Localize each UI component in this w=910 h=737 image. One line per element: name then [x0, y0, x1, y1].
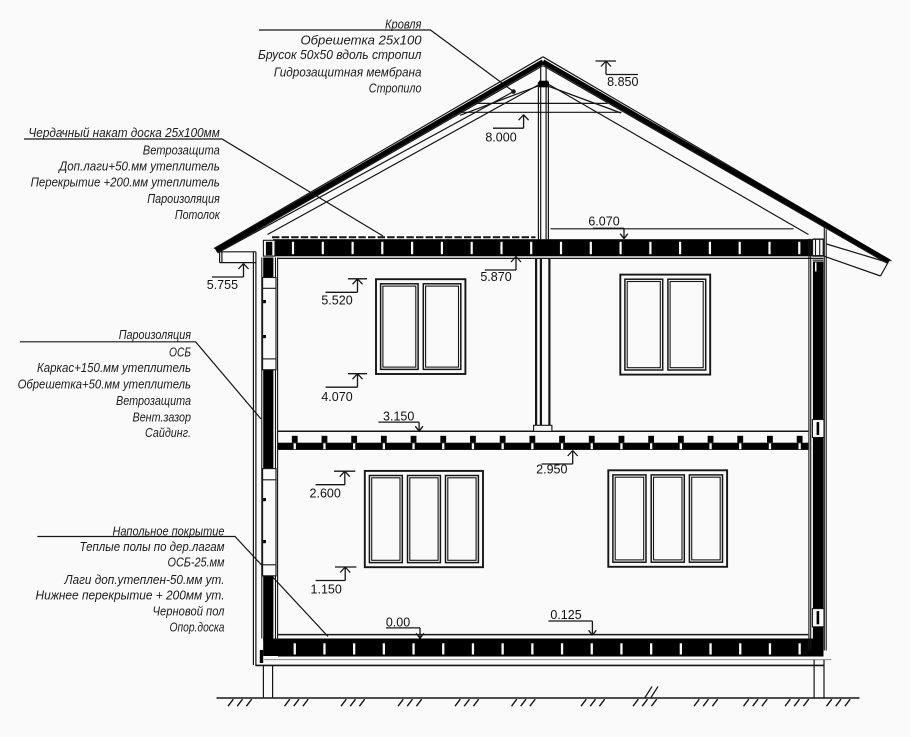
svg-text:Опор.доска: Опор.доска	[170, 620, 225, 635]
svg-text:Перекрытие +200.мм утеплитель: Перекрытие +200.мм утеплитель	[31, 175, 220, 190]
svg-text:5.870: 5.870	[480, 270, 511, 284]
svg-text:Нижнее перекрытие + 200мм ут.: Нижнее перекрытие + 200мм ут.	[36, 588, 225, 603]
svg-text:4.070: 4.070	[321, 390, 352, 404]
svg-text:ОСБ: ОСБ	[169, 345, 191, 360]
svg-text:Гидрозащитная мембрана: Гидрозащитная мембрана	[274, 64, 422, 79]
svg-text:Обрешетка 25х100: Обрешетка 25х100	[301, 32, 423, 47]
svg-text:0.00: 0.00	[386, 616, 410, 630]
svg-text:0.125: 0.125	[550, 608, 581, 622]
svg-text:Ветрозащита: Ветрозащита	[143, 143, 220, 158]
svg-text:Пароизоляция: Пароизоляция	[147, 191, 220, 206]
svg-text:Обрешетка+50.мм утеплитель: Обрешетка+50.мм утеплитель	[18, 377, 192, 392]
svg-text:2.950: 2.950	[536, 462, 567, 476]
svg-text:Каркас+150.мм утеплитель: Каркас+150.мм утеплитель	[37, 360, 191, 375]
svg-text:Вент.зазор: Вент.зазор	[133, 409, 192, 424]
svg-text:5.755: 5.755	[207, 278, 238, 292]
svg-text:6.070: 6.070	[588, 214, 619, 228]
svg-text:Пароизоляция: Пароизоляция	[119, 327, 191, 342]
svg-text:3.150: 3.150	[383, 410, 414, 424]
svg-text:Напольное покрытие: Напольное покрытие	[113, 524, 225, 539]
svg-text:Стропило: Стропило	[369, 80, 422, 95]
svg-text:ОСБ-25.мм: ОСБ-25.мм	[168, 555, 225, 570]
svg-text:Доп.лаги+50.мм утеплитель: Доп.лаги+50.мм утеплитель	[57, 159, 220, 174]
svg-text:5.520: 5.520	[321, 293, 352, 307]
svg-text:Ветрозащита: Ветрозащита	[116, 393, 191, 408]
svg-text:Потолок: Потолок	[175, 207, 221, 222]
svg-text:2.600: 2.600	[310, 487, 341, 501]
svg-text:Брусок 50х50 вдоль стропил: Брусок 50х50 вдоль стропил	[258, 47, 422, 62]
svg-text:Сайдинг.: Сайдинг.	[145, 425, 191, 440]
svg-text:Чердачный накат доска 25х100мм: Чердачный накат доска 25х100мм	[28, 125, 219, 140]
svg-text:Лаги доп.утеплен-50.мм ут.: Лаги доп.утеплен-50.мм ут.	[64, 572, 225, 587]
svg-text:Кровля: Кровля	[385, 16, 422, 31]
svg-text:8.000: 8.000	[485, 131, 516, 145]
svg-text:Теплые полы по дер.лагам: Теплые полы по дер.лагам	[80, 539, 225, 554]
svg-text:Черновой пол: Черновой пол	[153, 604, 226, 619]
svg-text:8.850: 8.850	[607, 75, 638, 89]
svg-text:1.150: 1.150	[311, 582, 342, 596]
